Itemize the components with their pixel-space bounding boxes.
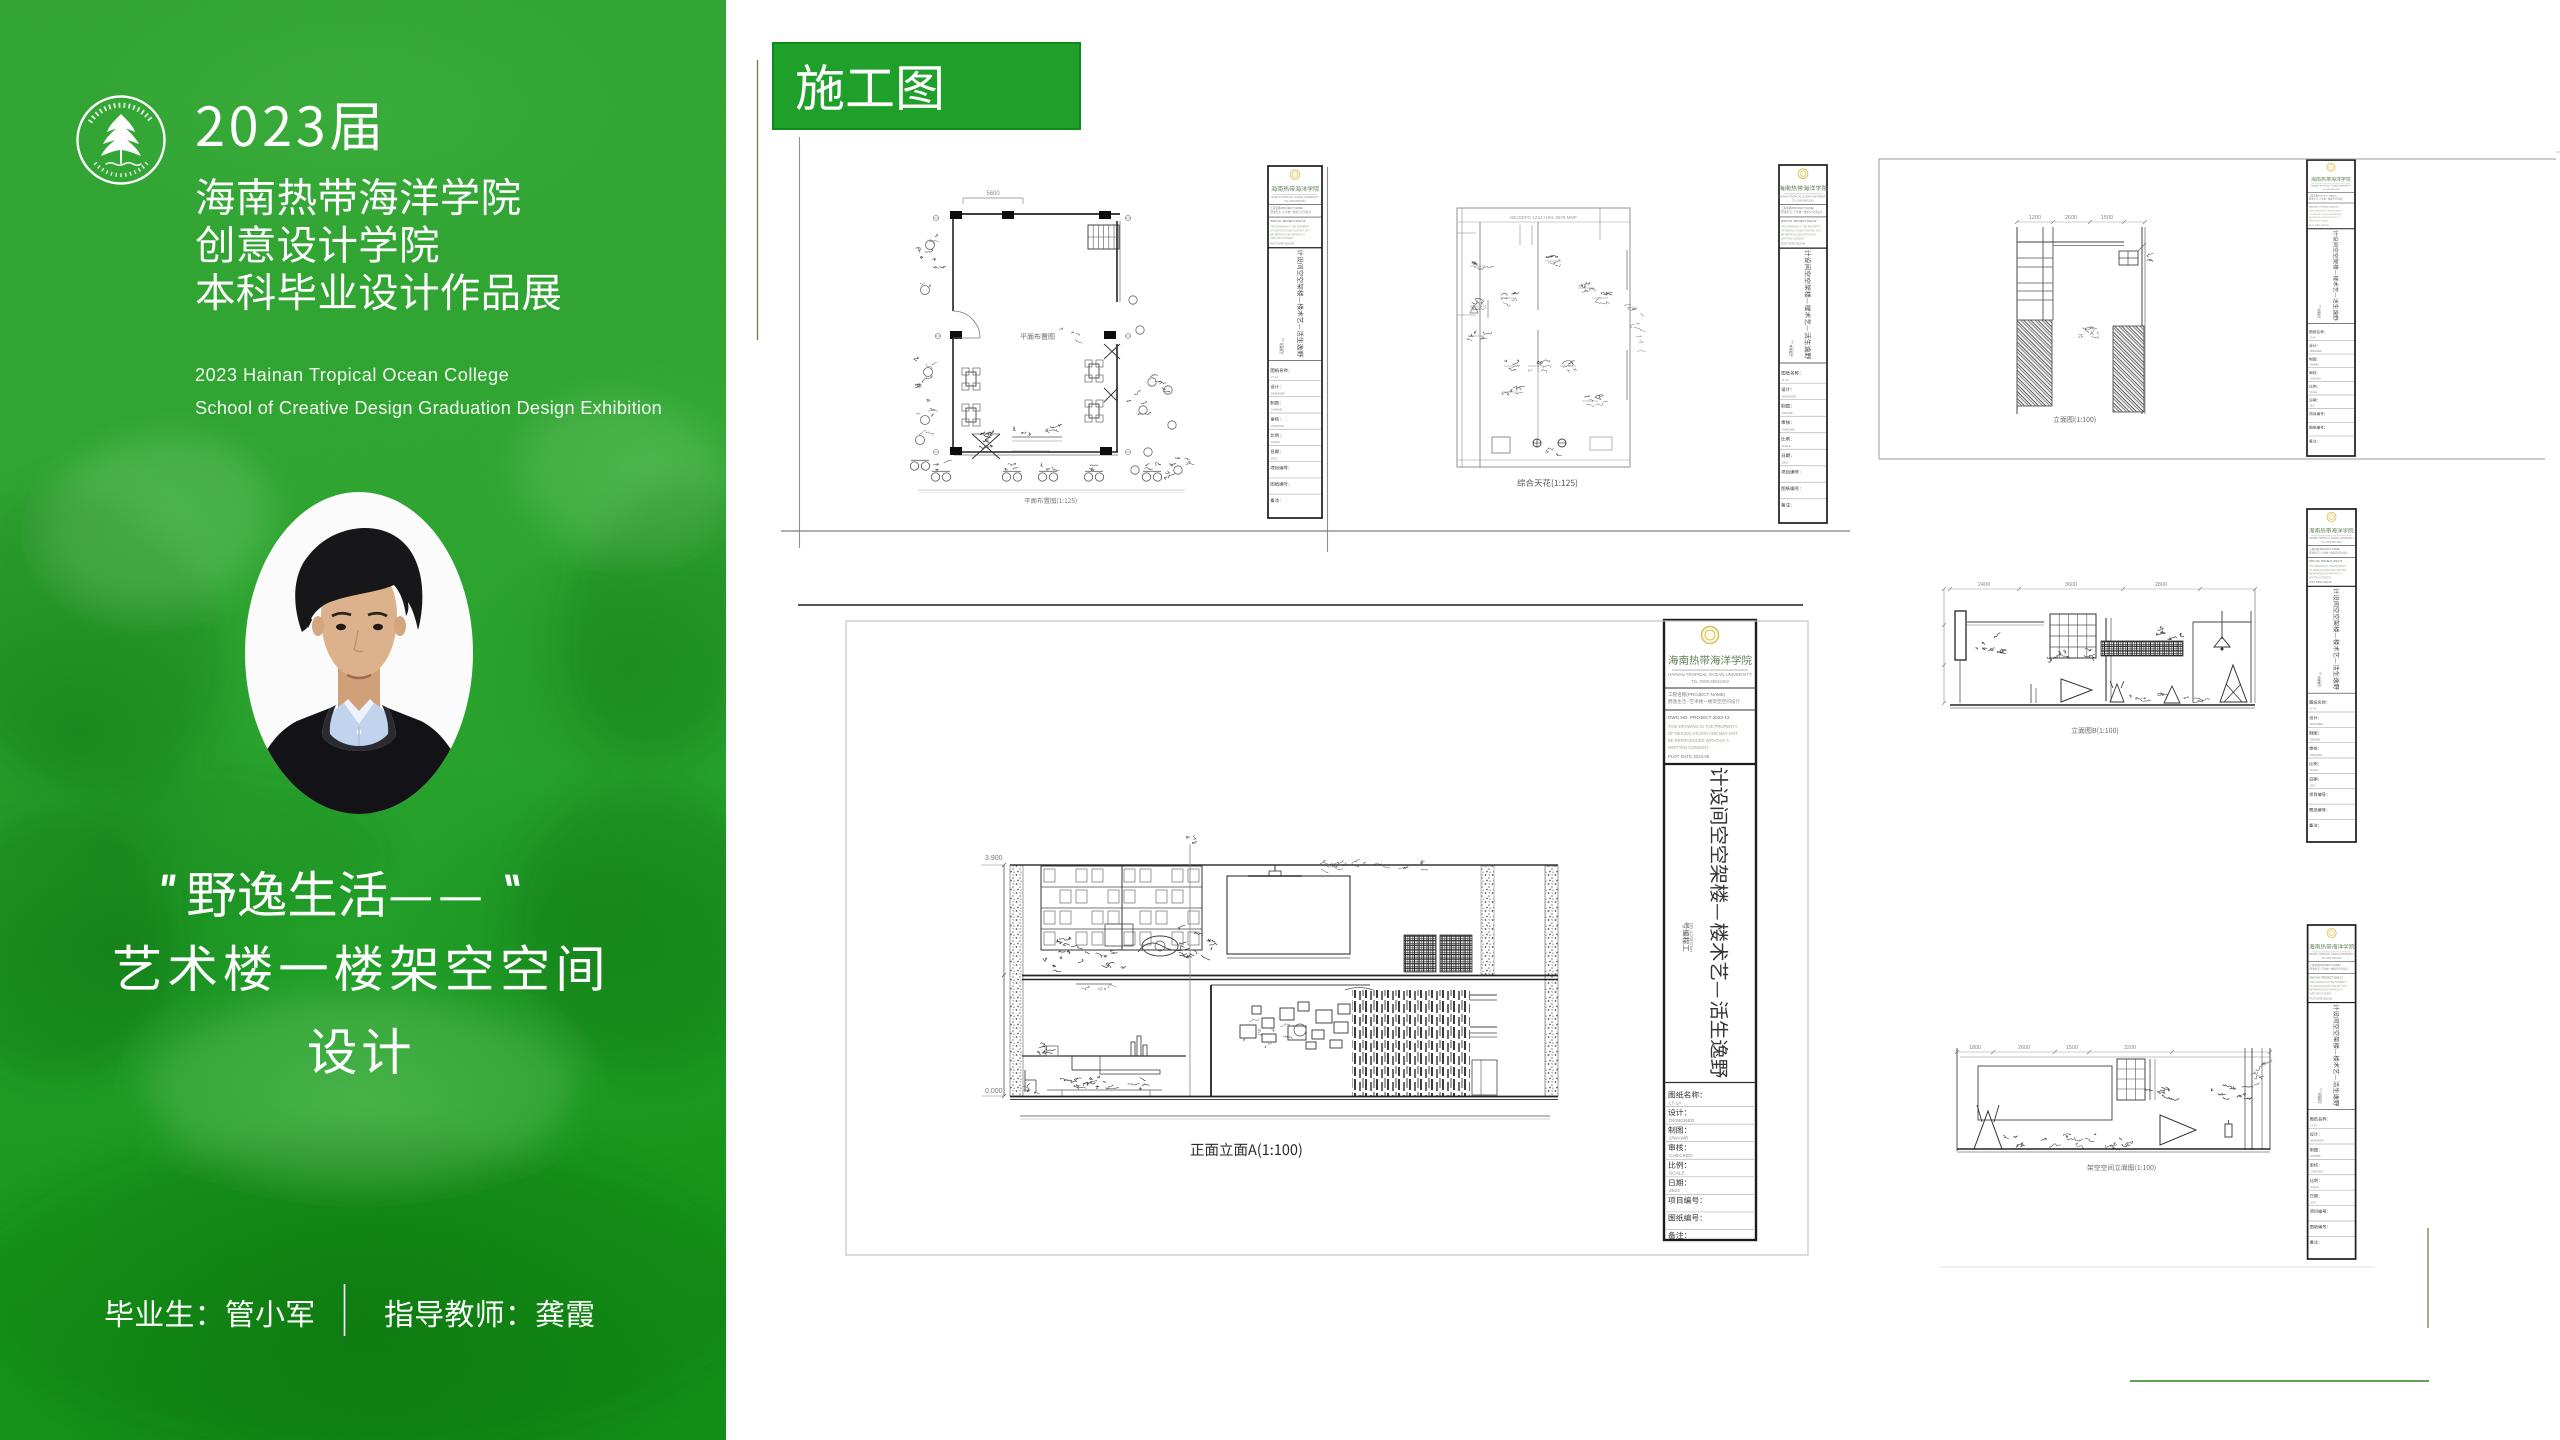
svg-text:野逸生活--艺术楼一楼架空空间设计: 野逸生活--艺术楼一楼架空空间设计 [1270, 210, 1311, 214]
svg-text:PLOT DATE 2023-05: PLOT DATE 2023-05 [1270, 242, 1294, 245]
svg-text:HAINAN TROPICAL OCEAN UNIVERSI: HAINAN TROPICAL OCEAN UNIVERSITY [1668, 672, 1752, 677]
svg-text:BE REPRODUCED WITHOUT A: BE REPRODUCED WITHOUT A [1270, 233, 1305, 236]
svg-text:CHECKED: CHECKED [2310, 753, 2323, 757]
svg-text:2400: 2400 [1978, 582, 1990, 588]
svg-text:PROJECT NO.: PROJECT NO. [1790, 339, 1794, 357]
svg-text:SCALE: SCALE [2310, 391, 2318, 394]
svg-text:SCALE: SCALE [1271, 440, 1280, 444]
svg-text:WRITTEN CONSENT.: WRITTEN CONSENT. [1668, 745, 1709, 750]
svg-text:2800: 2800 [2155, 582, 2167, 588]
svg-text:工程名称(PROJECT NAME): 工程名称(PROJECT NAME) [2309, 547, 2340, 551]
svg-text:DWG NO. PROJECT 2023-13: DWG NO. PROJECT 2023-13 [1781, 219, 1817, 223]
svg-text:PROJECT NO.: PROJECT NO. [2320, 304, 2322, 319]
svg-text:野逸生活--艺术楼一楼架空空间设计: 野逸生活--艺术楼一楼架空空间设计 [2310, 967, 2349, 971]
svg-text:DWG NO. PROJECT 2023-13: DWG NO. PROJECT 2023-13 [1270, 219, 1305, 223]
svg-text:CHECKED: CHECKED [1669, 1153, 1693, 1159]
svg-text:DWG NO. PROJECT 2023-13: DWG NO. PROJECT 2023-13 [1668, 715, 1730, 720]
svg-text:工程名称(PROJECT NAME): 工程名称(PROJECT NAME) [2310, 963, 2341, 967]
svg-text:PROJECT NO.: PROJECT NO. [1281, 337, 1285, 354]
svg-text:LT-1A: LT-1A [2310, 336, 2316, 339]
svg-text:PLOT DATE 2023-05: PLOT DATE 2023-05 [2309, 581, 2332, 584]
svg-text:2023: 2023 [1782, 460, 1789, 464]
svg-text:School of Creative Design Grad: School of Creative Design Graduation Des… [195, 398, 662, 418]
svg-text:SCALE: SCALE [1669, 1171, 1686, 1177]
svg-text:PLOT DATE 2023-05: PLOT DATE 2023-05 [1781, 243, 1805, 246]
svg-text:3.900: 3.900 [985, 855, 1003, 862]
svg-text:DESIGNED: DESIGNED [1669, 1118, 1695, 1124]
svg-text:LT-1A: LT-1A [1669, 1100, 1682, 1106]
svg-text:2600: 2600 [2018, 1045, 2030, 1051]
svg-text:OF DESIGN STUDIO AND MAY NOT: OF DESIGN STUDIO AND MAY NOT [2309, 213, 2343, 216]
svg-text:HAINAN TROPICAL OCEAN UNIVERSI: HAINAN TROPICAL OCEAN UNIVERSITY [2311, 185, 2352, 188]
svg-text:1200: 1200 [2029, 215, 2041, 221]
svg-text:THIS DRAWING IS THE PROPERTY: THIS DRAWING IS THE PROPERTY [1668, 724, 1738, 729]
svg-text:工程名称(PROJECT NAME): 工程名称(PROJECT NAME) [1270, 206, 1303, 210]
svg-text:野逸生活--艺术楼一楼架空空间设计: 野逸生活--艺术楼一楼架空空间设计 [2309, 551, 2348, 555]
svg-text:LT-1A: LT-1A [2310, 1123, 2317, 1127]
svg-text:2/WAWB: 2/WAWB [2310, 364, 2320, 367]
svg-text:2023: 2023 [2310, 406, 2316, 408]
svg-text:CHECKED: CHECKED [2310, 1170, 2323, 1174]
svg-text:CHECKED: CHECKED [1782, 427, 1796, 431]
svg-text:SCALE: SCALE [2310, 768, 2319, 772]
svg-text:2023: 2023 [2310, 1200, 2316, 1204]
svg-text:HAINAN TROPICAL OCEAN UNIVERSI: HAINAN TROPICAL OCEAN UNIVERSITY [2309, 953, 2355, 956]
svg-text:WRITTEN CONSENT.: WRITTEN CONSENT. [2309, 577, 2332, 579]
svg-text:TEL:0898-88651862: TEL:0898-88651862 [2322, 189, 2341, 191]
svg-text:1500: 1500 [2066, 1045, 2078, 1051]
svg-text:WRITTEN CONSENT.: WRITTEN CONSENT. [2309, 221, 2329, 223]
svg-text:2023: 2023 [1271, 456, 1278, 460]
svg-text:TEL:0898-88651862: TEL:0898-88651862 [2321, 958, 2342, 960]
svg-text:THIS DRAWING IS THE PROPERTY: THIS DRAWING IS THE PROPERTY [1781, 225, 1821, 228]
svg-text:HAINAN TROPICAL OCEAN UNIVERSI: HAINAN TROPICAL OCEAN UNIVERSITY [2309, 537, 2355, 540]
svg-text:2F: 2F [2078, 334, 2084, 340]
svg-text:DWG NO. PROJECT 2023-13: DWG NO. PROJECT 2023-13 [2310, 976, 2344, 979]
svg-text:OF DESIGN STUDIO AND MAY NOT: OF DESIGN STUDIO AND MAY NOT [2310, 985, 2348, 988]
svg-text:3600: 3600 [2065, 582, 2077, 588]
svg-text:DESIGNED: DESIGNED [1271, 391, 1285, 395]
svg-text:OF DESIGN STUDIO AND MAY NOT: OF DESIGN STUDIO AND MAY NOT [1270, 229, 1310, 232]
svg-text:2/WAWB: 2/WAWB [1271, 408, 1282, 412]
svg-text:BE REPRODUCED WITHOUT A: BE REPRODUCED WITHOUT A [2309, 573, 2342, 576]
svg-text:SCALE: SCALE [1782, 444, 1791, 448]
svg-text:TEL:0898-88651862: TEL:0898-88651862 [2321, 542, 2342, 544]
svg-text:5600: 5600 [986, 191, 1000, 197]
svg-text:PROJECT NO.: PROJECT NO. [1689, 922, 1694, 952]
svg-text:2023 Hainan Tropical Ocean Col: 2023 Hainan Tropical Ocean College [195, 365, 509, 385]
svg-text:LT-1A: LT-1A [1271, 375, 1278, 379]
svg-text:OF DESIGN STUDIO AND MAY NOT: OF DESIGN STUDIO AND MAY NOT [1668, 731, 1738, 736]
svg-text:CHECKED: CHECKED [1271, 424, 1284, 428]
svg-text:CHECKED: CHECKED [2310, 378, 2322, 380]
svg-text:HAINAN TROPICAL OCEAN UNIVERSI: HAINAN TROPICAL OCEAN UNIVERSITY [1779, 195, 1828, 198]
svg-text:工程名称(PROJECT NAME): 工程名称(PROJECT NAME) [1781, 206, 1814, 210]
svg-text:PLOT DATE 2023-05: PLOT DATE 2023-05 [1668, 754, 1710, 759]
svg-text:WRITTEN CONSENT.: WRITTEN CONSENT. [2310, 993, 2333, 995]
svg-text:LT-1A: LT-1A [1782, 378, 1789, 382]
svg-text:BE REPRODUCED WITHOUT A: BE REPRODUCED WITHOUT A [2309, 216, 2339, 219]
svg-text:2023: 2023 [1669, 1188, 1680, 1194]
svg-text:BE REPRODUCED WITHOUT A: BE REPRODUCED WITHOUT A [1668, 738, 1729, 743]
svg-text:BE REPRODUCED WITHOUT A: BE REPRODUCED WITHOUT A [2310, 989, 2343, 992]
svg-text:工程名称(PROJECT NAME): 工程名称(PROJECT NAME) [1668, 691, 1726, 698]
svg-text:THIS DRAWING IS THE PROPERTY: THIS DRAWING IS THE PROPERTY [1270, 225, 1310, 228]
svg-text:HAINAN TROPICAL OCEAN UNIVERSI: HAINAN TROPICAL OCEAN UNIVERSITY [1271, 196, 1319, 199]
svg-text:TEL:0898-88651862: TEL:0898-88651862 [1691, 679, 1730, 684]
svg-text:2/WAWB: 2/WAWB [2310, 1154, 2321, 1158]
svg-text:ABCDEFG 1234 HJKL 5678 MNP: ABCDEFG 1234 HJKL 5678 MNP [1509, 215, 1577, 220]
svg-text:WRITTEN CONSENT.: WRITTEN CONSENT. [1781, 237, 1805, 240]
svg-text:DESIGNED: DESIGNED [2310, 1139, 2324, 1143]
svg-text:THIS DRAWING IS THE PROPERTY: THIS DRAWING IS THE PROPERTY [2310, 981, 2348, 984]
svg-text:LT-1A: LT-1A [2310, 707, 2317, 711]
svg-text:TEL:0898-88651862: TEL:0898-88651862 [1284, 200, 1306, 203]
svg-text:SCALE: SCALE [2310, 1185, 2319, 1189]
svg-text:2/WAWB: 2/WAWB [2310, 737, 2321, 741]
svg-text:WRITTEN CONSENT.: WRITTEN CONSENT. [1270, 237, 1294, 240]
svg-text:PROJECT NO.: PROJECT NO. [2319, 671, 2322, 687]
svg-text:BE REPRODUCED WITHOUT A: BE REPRODUCED WITHOUT A [1781, 233, 1816, 236]
svg-text:2023: 2023 [2310, 784, 2316, 788]
svg-text:2/WAWB: 2/WAWB [1782, 411, 1793, 415]
svg-text:DESIGNED: DESIGNED [1782, 394, 1797, 398]
svg-text:1800: 1800 [1969, 1045, 1981, 1051]
svg-text:THIS DRAWING IS THE PROPERTY: THIS DRAWING IS THE PROPERTY [2309, 210, 2343, 213]
svg-text:2600: 2600 [2065, 215, 2077, 221]
svg-text:TEL:0898-88651862: TEL:0898-88651862 [1792, 199, 1815, 202]
svg-text:THIS DRAWING IS THE PROPERTY: THIS DRAWING IS THE PROPERTY [2309, 565, 2347, 568]
svg-text:PLOT DATE 2023-05: PLOT DATE 2023-05 [2310, 997, 2333, 1000]
svg-text:1500: 1500 [2101, 215, 2113, 221]
svg-text:野逸生活--艺术楼一楼架空空间设计: 野逸生活--艺术楼一楼架空空间设计 [1781, 210, 1823, 214]
svg-text:OF DESIGN STUDIO AND MAY NOT: OF DESIGN STUDIO AND MAY NOT [2309, 569, 2347, 572]
svg-text:PROJECT NO.: PROJECT NO. [2320, 1087, 2323, 1103]
svg-text:3200: 3200 [2124, 1045, 2136, 1051]
svg-text:0.000: 0.000 [985, 1088, 1003, 1095]
svg-text:OF DESIGN STUDIO AND MAY NOT: OF DESIGN STUDIO AND MAY NOT [1781, 229, 1822, 232]
svg-text:DWG NO. PROJECT 2023-13: DWG NO. PROJECT 2023-13 [2309, 206, 2339, 208]
svg-text:DESIGNED: DESIGNED [2310, 351, 2322, 353]
svg-text:2/WAWB: 2/WAWB [1669, 1135, 1688, 1141]
svg-text:DESIGNED: DESIGNED [2310, 722, 2324, 726]
svg-text:野逸生活--艺术楼一楼架空空间设计: 野逸生活--艺术楼一楼架空空间设计 [1668, 698, 1740, 705]
svg-text:DWG NO. PROJECT 2023-13: DWG NO. PROJECT 2023-13 [2309, 560, 2343, 563]
svg-text:PLOT DATE 2023-05: PLOT DATE 2023-05 [2309, 224, 2330, 227]
